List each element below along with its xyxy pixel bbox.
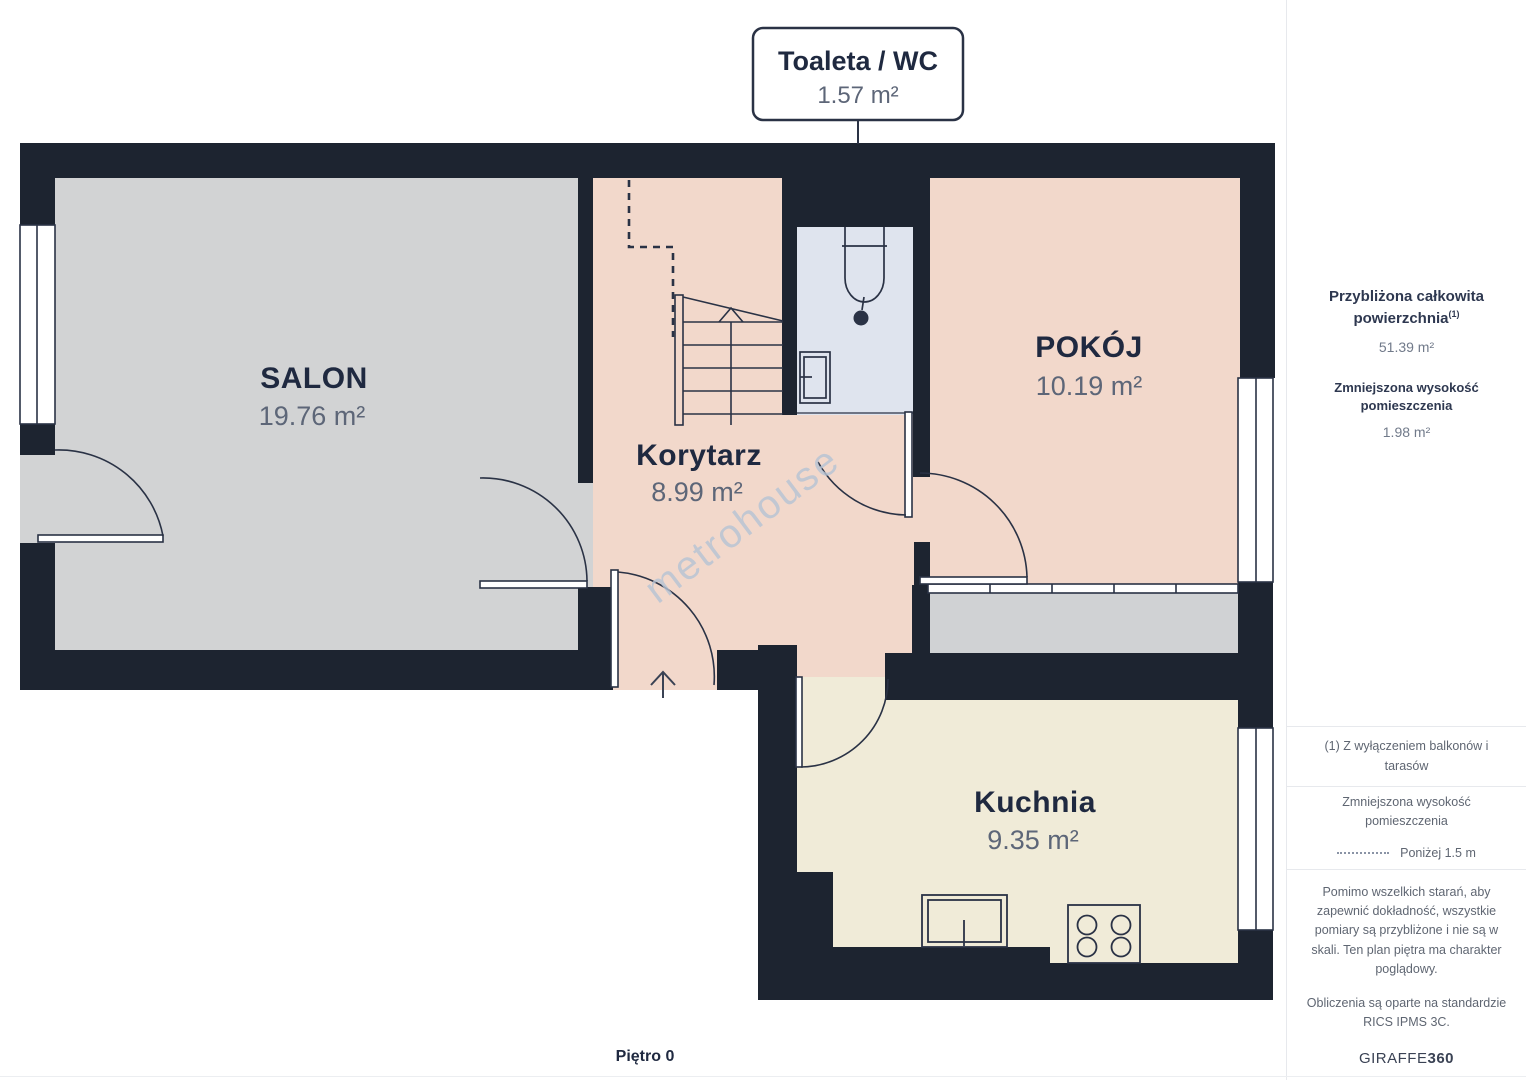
salon-exterior-door-opening <box>20 455 55 543</box>
total-area-label: Przybliżona całkowita powierzchnia(1) <box>1305 286 1508 330</box>
sidebar-disclaimer-section: Pomimo wszelkich starań, aby zapewnić do… <box>1287 869 1526 1080</box>
kitchen-window <box>1238 728 1273 930</box>
korytarz-label: Korytarz <box>636 439 762 472</box>
reduced-height-value: 1.98 m² <box>1383 424 1430 440</box>
salon-label: SALON <box>260 362 368 395</box>
korytarz-area: 8.99 m² <box>651 477 743 507</box>
legend-row: Poniżej 1.5 m <box>1337 844 1476 863</box>
salon-area: 19.76 m² <box>259 401 366 431</box>
toilet-callout-area: 1.57 m² <box>817 82 898 109</box>
brand-suffix: 360 <box>1427 1050 1454 1067</box>
floor-label: Piętro 0 <box>616 1048 675 1065</box>
disclaimer-text: Pomimo wszelkich starań, aby zapewnić do… <box>1303 883 1511 980</box>
sidebar-summary-section: Przybliżona całkowita powierzchnia(1) 51… <box>1287 0 1526 726</box>
pokoj-window <box>1238 378 1273 582</box>
total-area-value: 51.39 m² <box>1379 339 1434 355</box>
toilet-callout: Toaleta / WC 1.57 m² <box>753 28 963 144</box>
salon-door-opening <box>578 483 593 587</box>
legend-label: Zmniejszona wysokość pomieszczenia <box>1305 793 1508 832</box>
salon-window <box>20 225 55 424</box>
legend-value: Poniżej 1.5 m <box>1400 844 1476 863</box>
kuchnia-label: Kuchnia <box>974 786 1096 819</box>
floorplan-page: metrohouse SALON 19.76 m² Korytarz 8.99 … <box>0 0 1526 1080</box>
floorplan-canvas: metrohouse SALON 19.76 m² Korytarz 8.99 … <box>0 0 1286 1080</box>
total-area-label-text: Przybliżona całkowita powierzchnia <box>1329 288 1484 327</box>
total-area-footnote-marker: (1) <box>1449 309 1460 319</box>
corridor-kitchen-opening <box>797 645 885 679</box>
reduced-height-label: Zmniejszona wysokość pomieszczenia <box>1305 379 1508 415</box>
info-sidebar: Przybliżona całkowita powierzchnia(1) 51… <box>1286 0 1526 1080</box>
footnote-text: (1) Z wyłączeniem balkonów i tarasów <box>1305 737 1508 776</box>
balcony-floor <box>930 593 1238 653</box>
brand-name: GIRAFFE <box>1359 1050 1428 1067</box>
balcony-sliding-door <box>928 584 1238 593</box>
standard-note: Obliczenia są oparte na standardzie RICS… <box>1303 994 1511 1033</box>
pokoj-label: POKÓJ <box>1035 330 1143 364</box>
kuchnia-area: 9.35 m² <box>987 825 1079 855</box>
toilet-callout-title: Toaleta / WC <box>778 46 938 76</box>
giraffe360-logo: GIRAFFE360 <box>1359 1050 1454 1067</box>
sidebar-footnote-section: (1) Z wyłączeniem balkonów i tarasów <box>1287 726 1526 786</box>
dashed-line-icon <box>1337 852 1389 854</box>
sidebar-legend-section: Zmniejszona wysokość pomieszczenia Poniż… <box>1287 786 1526 869</box>
pokoj-area: 10.19 m² <box>1036 371 1143 401</box>
kitchen-floor <box>797 677 1238 963</box>
